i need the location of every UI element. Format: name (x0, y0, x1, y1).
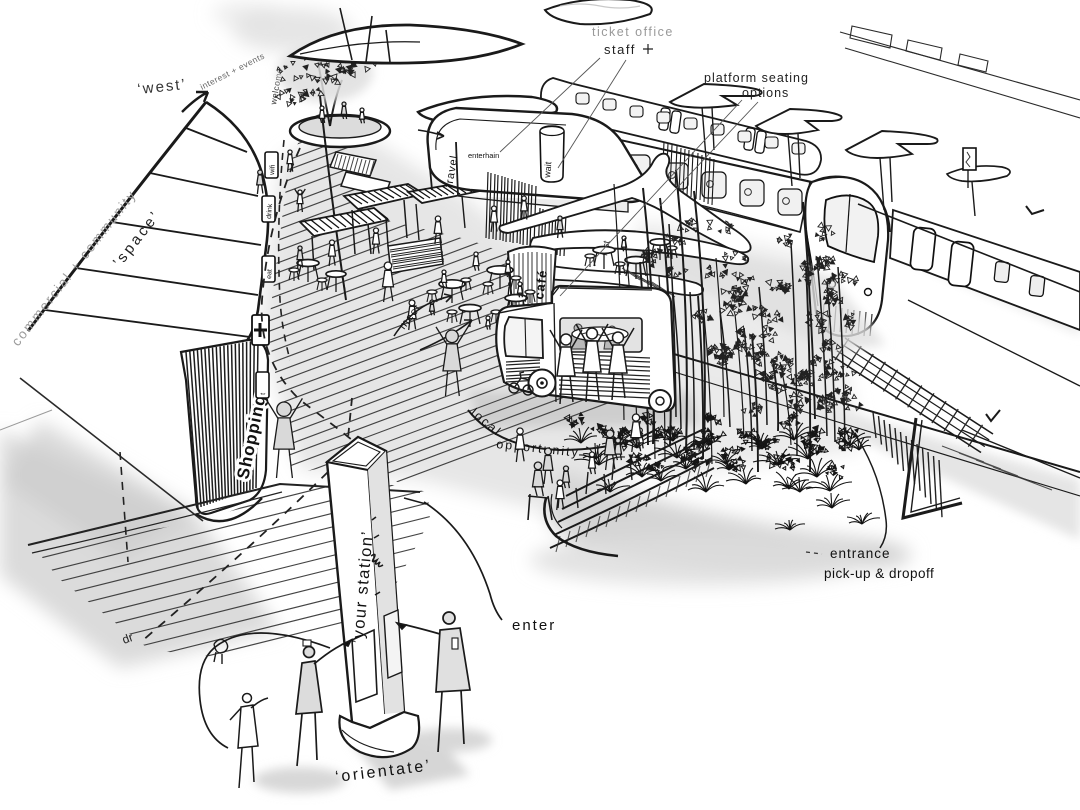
svg-text:pick-up & dropoff: pick-up & dropoff (824, 566, 934, 581)
svg-text:enter: enter (512, 617, 556, 634)
svg-text:enterhain: enterhain (468, 151, 499, 160)
svg-text:entrance: entrance (830, 546, 891, 561)
svg-text:eat: eat (266, 269, 274, 279)
svg-text:platform seating: platform seating (704, 71, 809, 85)
svg-text:ticket office: ticket office (592, 25, 674, 39)
svg-text:wait: wait (542, 161, 553, 179)
svg-text:wifi: wifi (269, 164, 277, 176)
svg-text:options: options (742, 86, 789, 100)
svg-text:drink: drink (266, 203, 274, 219)
svg-text:staff: staff (604, 42, 636, 57)
